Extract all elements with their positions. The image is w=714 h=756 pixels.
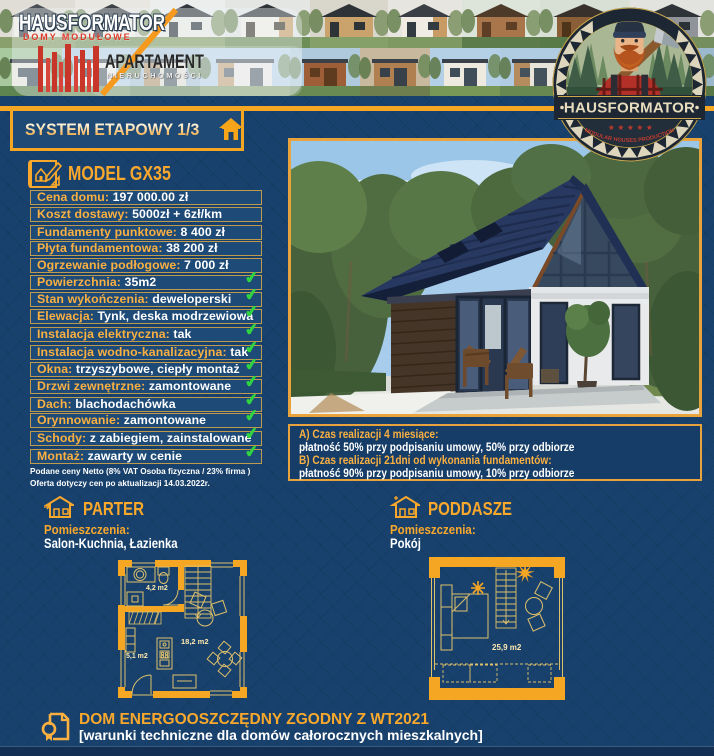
svg-text:★: ★	[627, 123, 634, 132]
svg-text:★: ★	[646, 123, 653, 132]
svg-text:★: ★	[618, 123, 625, 132]
svg-text:★: ★	[637, 123, 644, 132]
svg-text:★: ★	[608, 123, 615, 132]
svg-text:25,9 m2: 25,9 m2	[492, 643, 522, 652]
svg-text:18,2 m2: 18,2 m2	[181, 637, 209, 646]
svg-text:HAUSFORMATOR: HAUSFORMATOR	[564, 100, 695, 117]
svg-text:5,1 m2: 5,1 m2	[126, 653, 148, 660]
svg-text:4,2 m2: 4,2 m2	[146, 585, 168, 592]
